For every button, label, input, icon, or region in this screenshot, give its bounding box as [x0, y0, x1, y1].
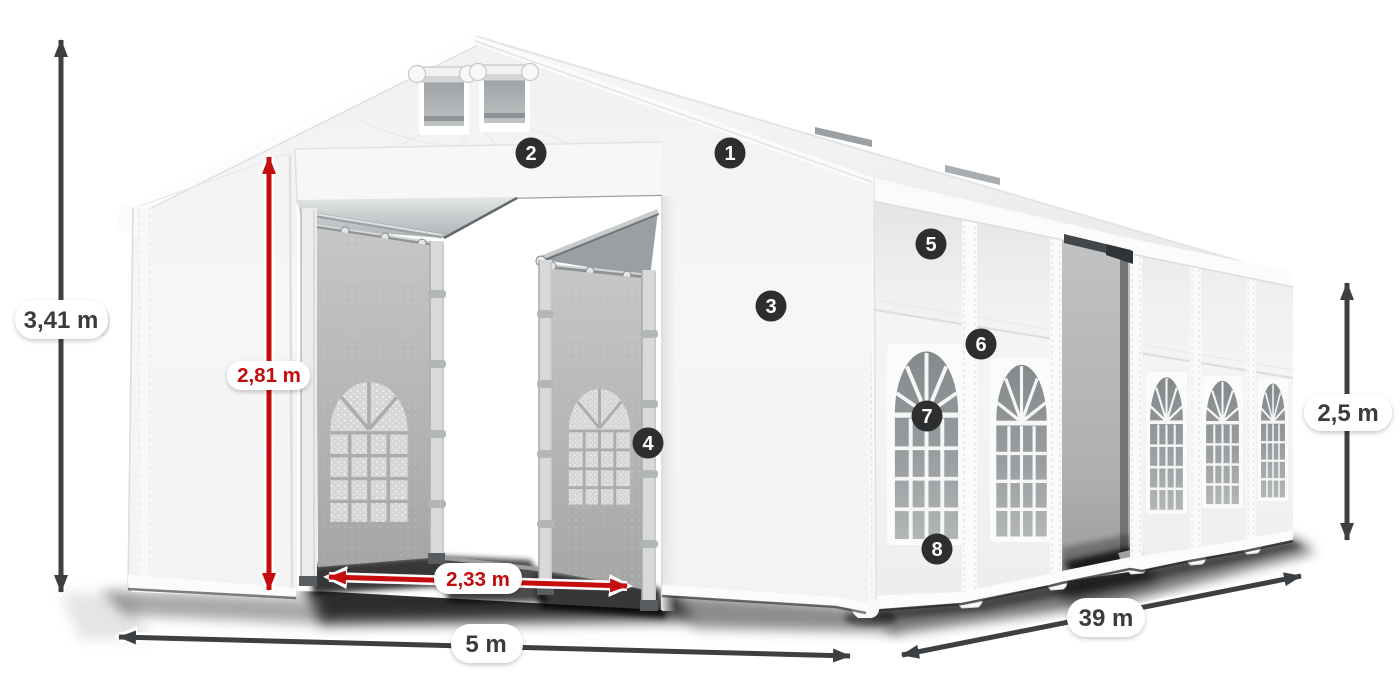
svg-text:3,41 m: 3,41 m	[24, 307, 99, 334]
svg-text:4: 4	[642, 433, 654, 455]
svg-text:5 m: 5 m	[465, 631, 506, 658]
svg-text:3: 3	[765, 296, 776, 318]
svg-text:2,5 m: 2,5 m	[1317, 400, 1378, 427]
svg-text:1: 1	[724, 143, 735, 165]
svg-text:2: 2	[525, 143, 536, 165]
svg-text:39 m: 39 m	[1079, 605, 1134, 632]
svg-text:2,33 m: 2,33 m	[446, 568, 510, 591]
svg-text:5: 5	[925, 234, 936, 256]
svg-text:8: 8	[931, 539, 942, 561]
svg-text:6: 6	[975, 334, 986, 356]
svg-text:2,81 m: 2,81 m	[237, 364, 301, 387]
svg-text:7: 7	[921, 406, 932, 428]
